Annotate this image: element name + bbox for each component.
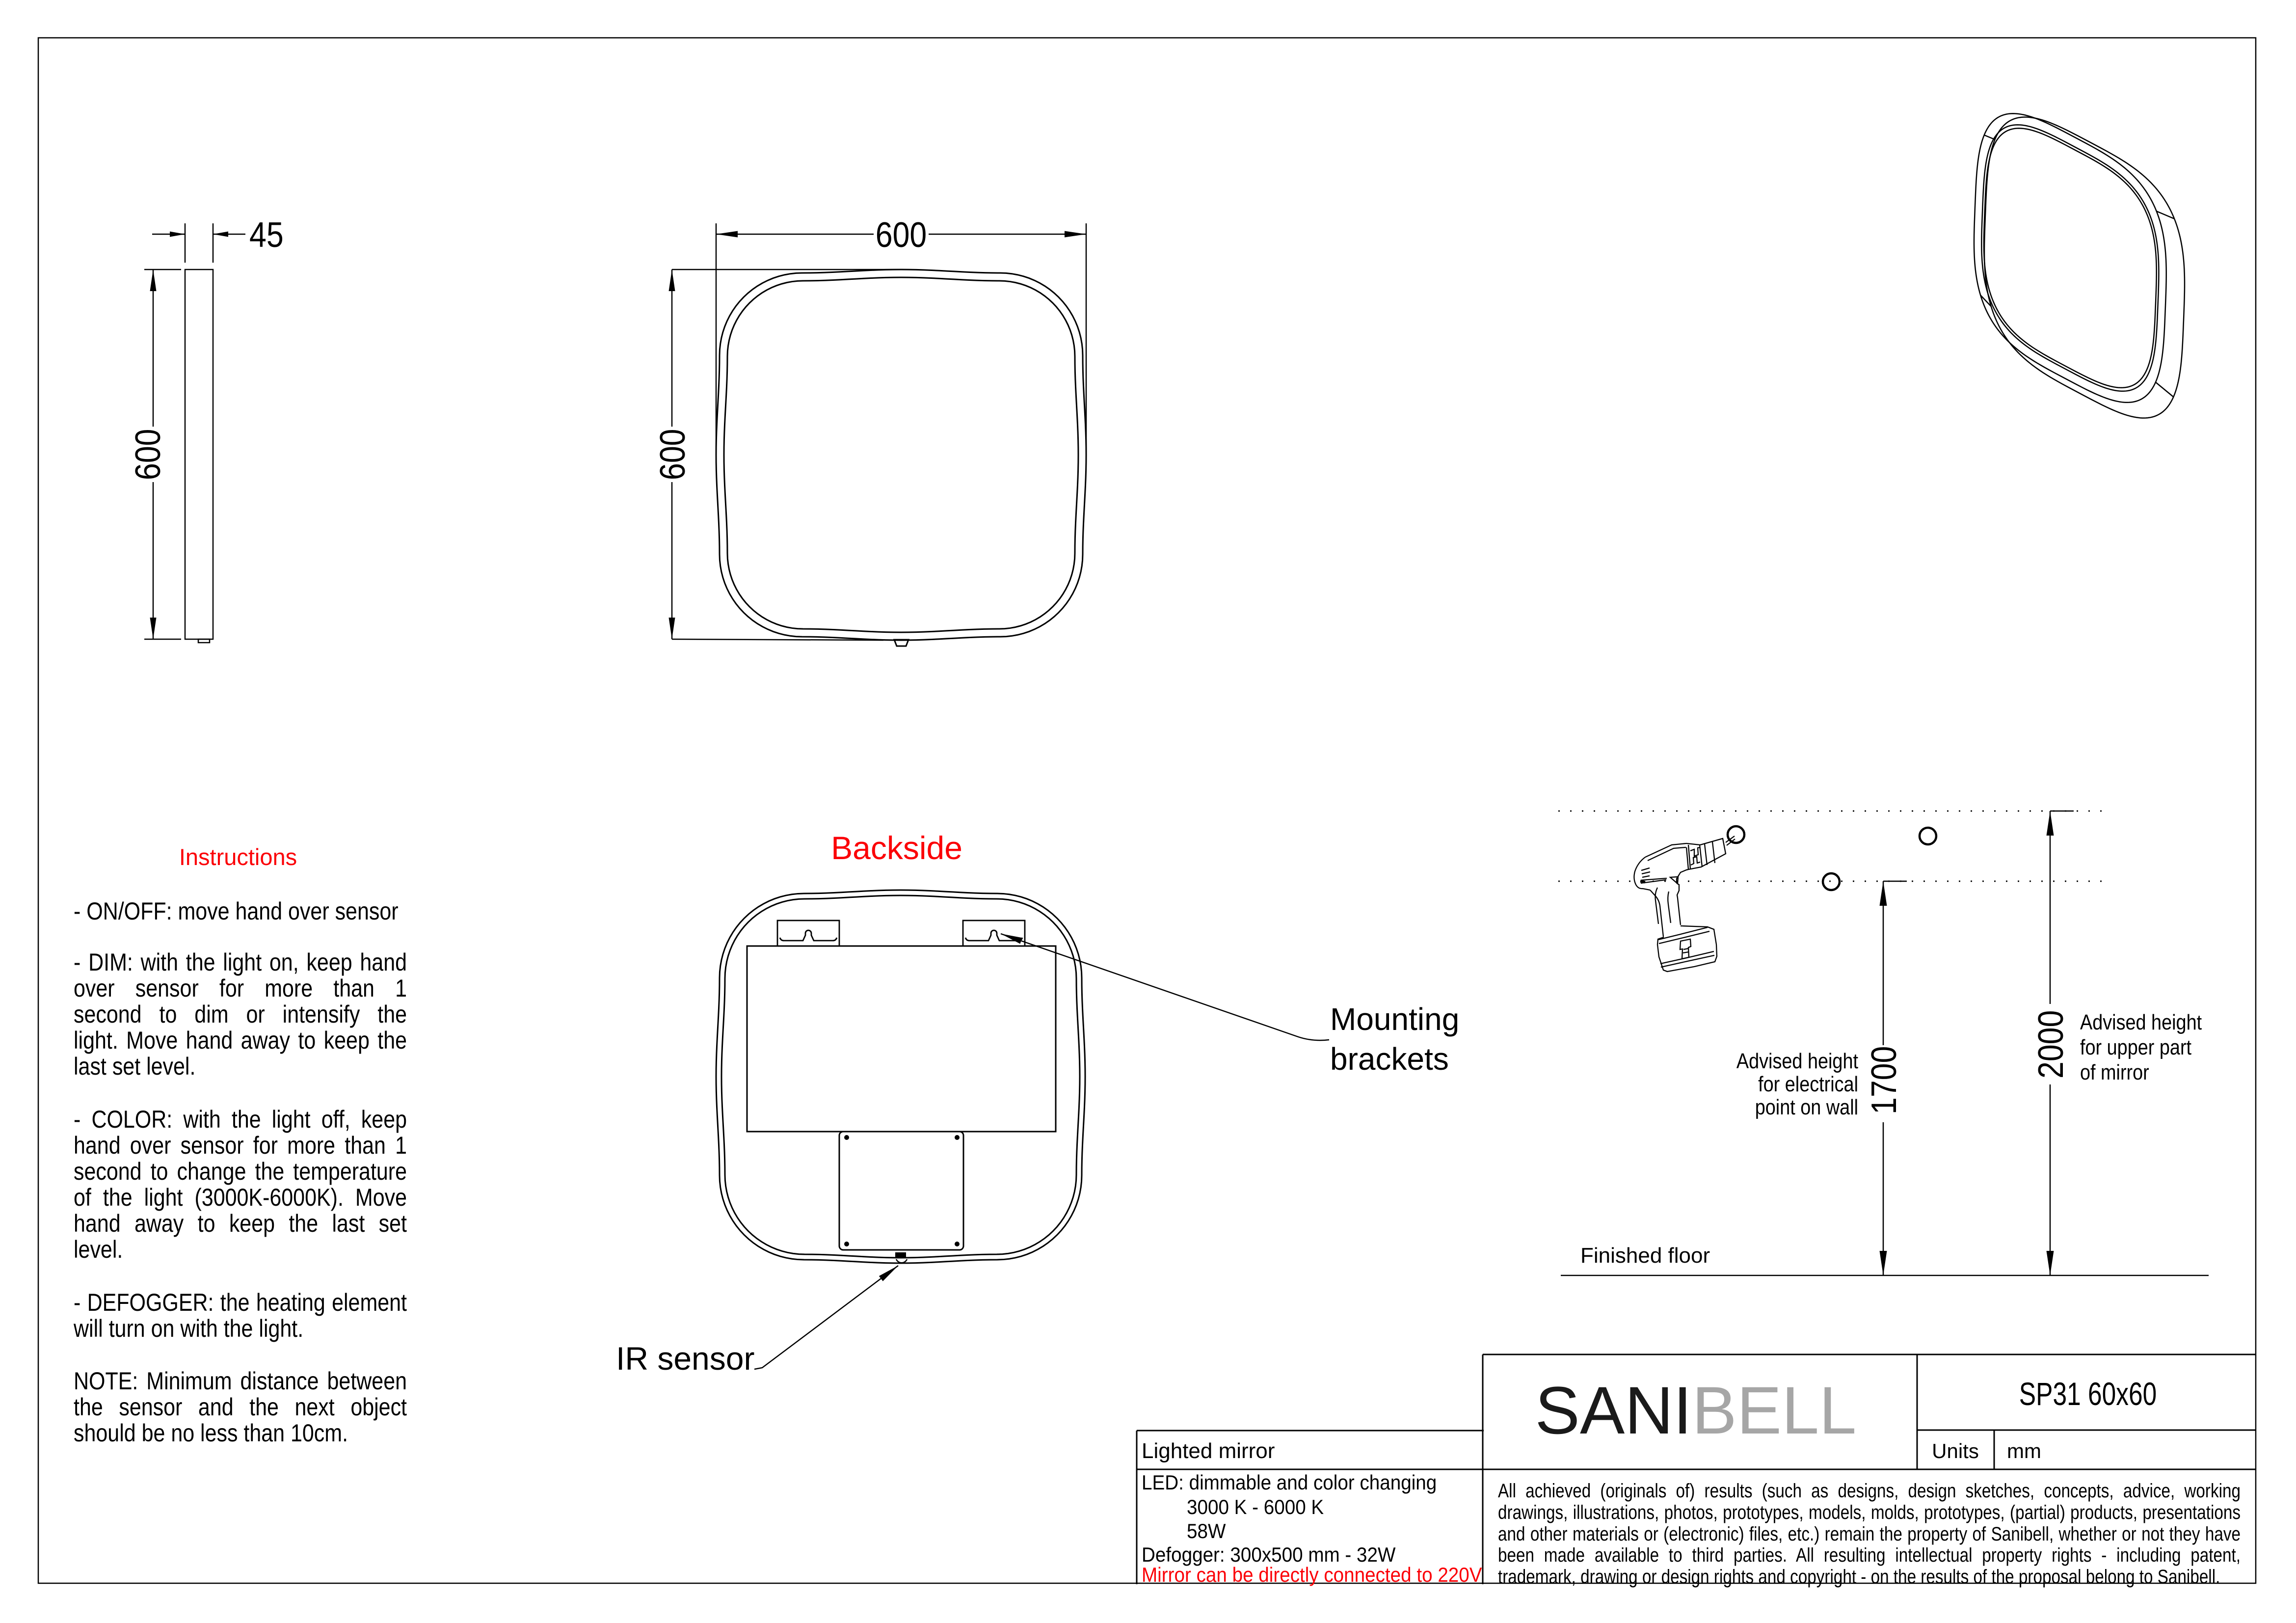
svg-text:for upper part: for upper part — [2080, 1035, 2192, 1059]
svg-text:Units: Units — [1932, 1439, 1979, 1462]
svg-text:SP31 60x60: SP31 60x60 — [2019, 1376, 2157, 1412]
svg-text:IR sensor: IR sensor — [616, 1340, 754, 1377]
svg-text:for electrical: for electrical — [1758, 1072, 1858, 1096]
svg-text:Backside: Backside — [831, 830, 962, 866]
svg-text:Advised height: Advised height — [1736, 1049, 1859, 1073]
svg-text:of mirror: of mirror — [2080, 1060, 2149, 1084]
svg-text:Finished floor: Finished floor — [1580, 1244, 1710, 1268]
svg-text:Mounting: Mounting — [1330, 1001, 1459, 1037]
svg-text:Lighted mirror: Lighted mirror — [1142, 1439, 1275, 1463]
svg-text:brackets: brackets — [1330, 1041, 1449, 1077]
svg-text:SANIBELL: SANIBELL — [1535, 1373, 1857, 1448]
svg-text:45: 45 — [249, 216, 284, 255]
svg-text:2000: 2000 — [2031, 1010, 2071, 1079]
svg-text:58W: 58W — [1187, 1519, 1226, 1542]
svg-text:Instructions: Instructions — [179, 844, 297, 870]
svg-text:Mirror can be directly connect: Mirror can be directly connected to 220V — [1142, 1563, 1482, 1586]
svg-text:600: 600 — [653, 429, 693, 480]
svg-text:600: 600 — [876, 216, 927, 255]
svg-text:3000 K - 6000 K: 3000 K - 6000 K — [1187, 1495, 1324, 1518]
svg-text:1700: 1700 — [1865, 1046, 1904, 1114]
svg-text:mm: mm — [2007, 1439, 2041, 1462]
svg-text:point on wall: point on wall — [1755, 1095, 1858, 1119]
svg-text:600: 600 — [129, 429, 168, 480]
svg-text:Advised height: Advised height — [2080, 1010, 2202, 1034]
svg-text:LED: dimmable and color changi: LED: dimmable and color changing — [1142, 1470, 1437, 1494]
